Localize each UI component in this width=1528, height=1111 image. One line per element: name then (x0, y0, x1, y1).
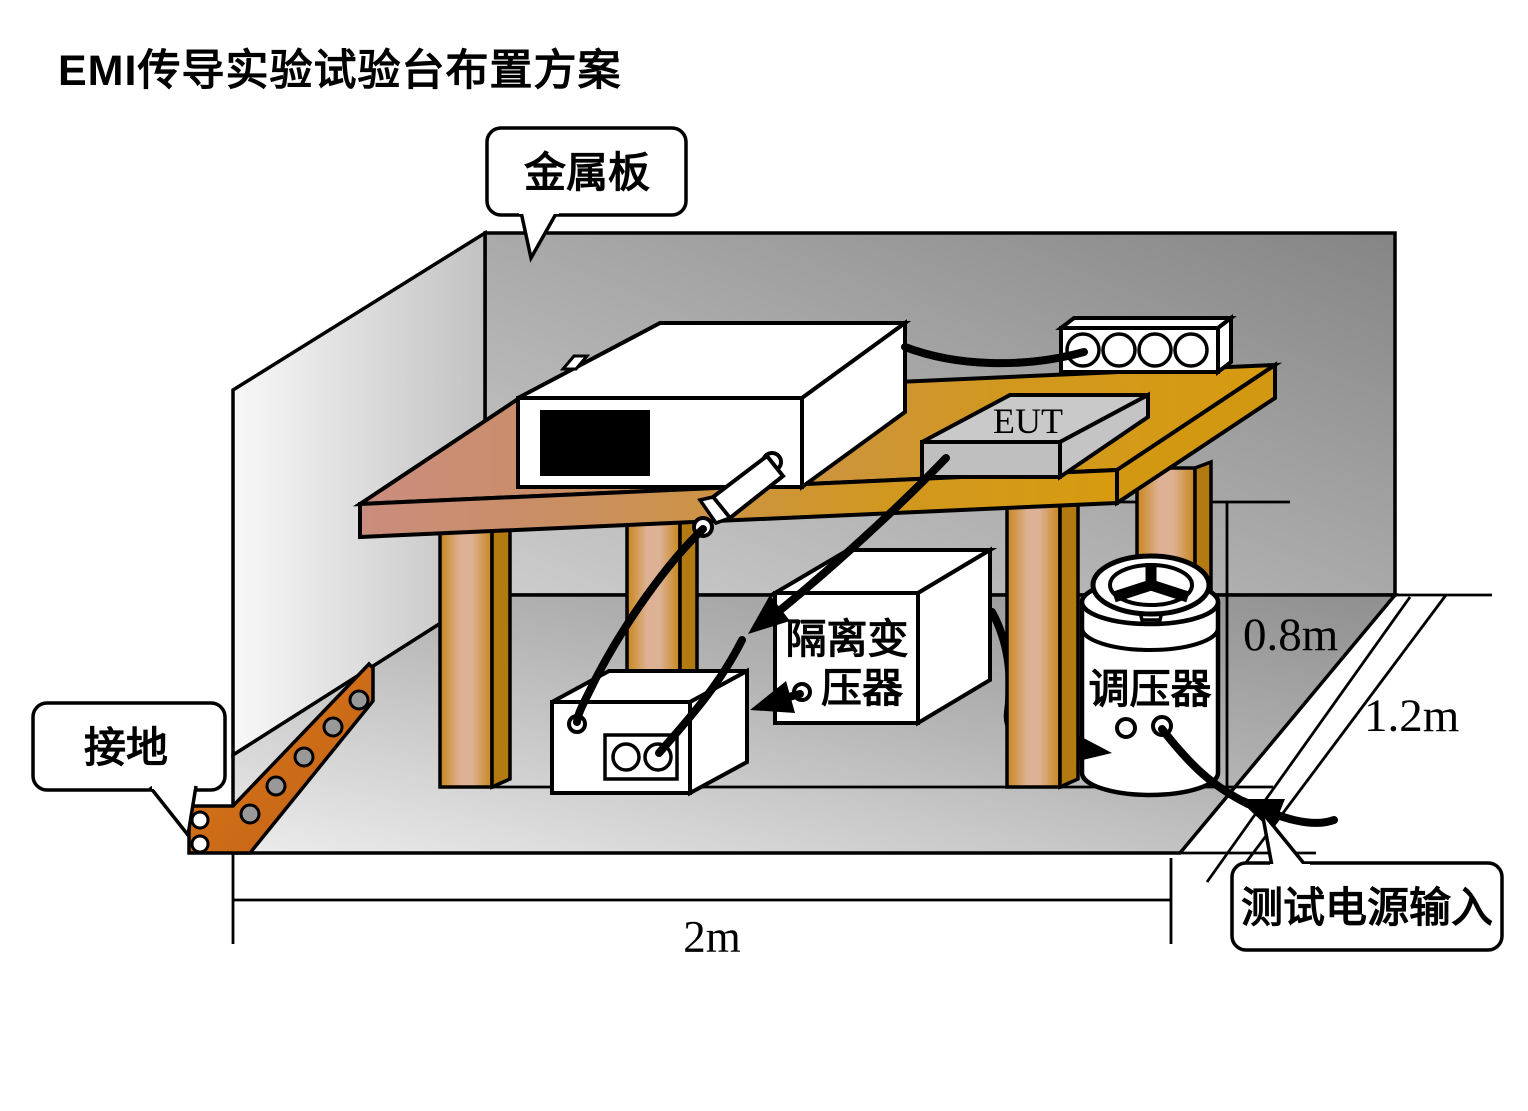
table-leg (440, 498, 492, 787)
strap-hole (192, 836, 208, 852)
lisn-box (552, 671, 747, 793)
receiver-screen (540, 410, 650, 476)
voltage-regulator: 调压器 (1082, 556, 1218, 795)
regulator-label: 调压器 (1089, 666, 1213, 712)
table-width-label: 2m (683, 912, 741, 962)
callout-power-input: 测试电源输入 (1232, 812, 1502, 950)
regulator-terminal (1117, 719, 1135, 737)
power-input-callout-label: 测试电源输入 (1241, 884, 1493, 931)
strap-rivet (267, 777, 285, 795)
strap-hole (192, 812, 208, 828)
table-leg-side (1060, 478, 1078, 787)
outlet-socket-icon (1103, 334, 1135, 366)
eut-label: EUT (993, 401, 1063, 441)
outlet-socket-icon (1175, 334, 1207, 366)
strap-rivet (241, 805, 259, 823)
strap-rivet (324, 718, 342, 736)
strap-rivet (350, 691, 368, 709)
power-strip (1061, 318, 1231, 372)
table-height-label: 0.8m (1243, 609, 1338, 661)
diagram-canvas: 0.8m 1.2m 2m 调压器 (0, 0, 1528, 1111)
table-leg-side (492, 491, 510, 787)
ground-callout-label: 接地 (84, 724, 168, 771)
table-depth-label: 1.2m (1364, 690, 1459, 742)
diagram-page: 0.8m 1.2m 2m 调压器 (0, 0, 1528, 1111)
page-title: EMI传导实验试验台布置方案 (58, 47, 621, 95)
table-leg (1007, 485, 1060, 787)
metal-plate-callout-label: 金属板 (523, 149, 650, 196)
outlet-socket-icon (1139, 334, 1171, 366)
outlet-socket-icon (613, 744, 639, 770)
transformer-label-line2: 压器 (821, 665, 904, 711)
transformer-label-line1: 隔离变 (786, 616, 909, 662)
strap-rivet (295, 748, 313, 766)
